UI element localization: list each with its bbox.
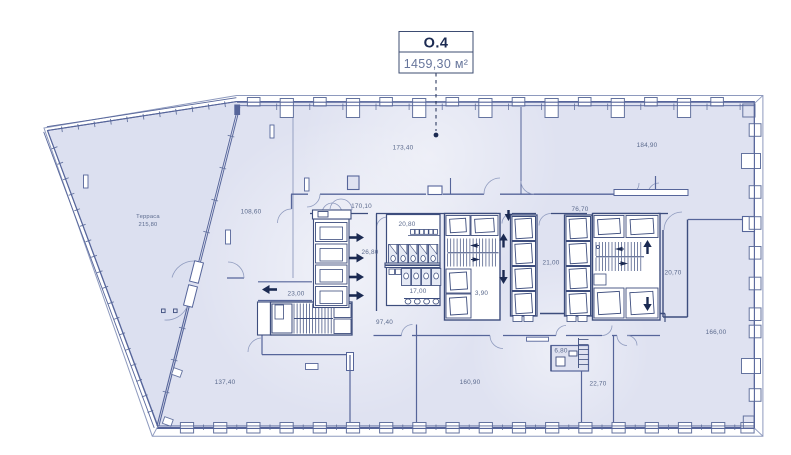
svg-text:160,90: 160,90 <box>460 379 481 386</box>
svg-text:1459,30 м²: 1459,30 м² <box>404 57 468 71</box>
svg-text:184,90: 184,90 <box>637 142 658 149</box>
svg-text:20,80: 20,80 <box>399 221 416 228</box>
svg-text:O.4: O.4 <box>424 36 449 52</box>
svg-text:97,40: 97,40 <box>376 319 393 326</box>
svg-text:3,90: 3,90 <box>475 290 488 297</box>
svg-text:170,10: 170,10 <box>351 203 372 210</box>
svg-text:20,70: 20,70 <box>665 270 682 277</box>
svg-text:21,00: 21,00 <box>543 260 560 267</box>
svg-text:166,00: 166,00 <box>706 329 727 336</box>
svg-text:Терраса: Терраса <box>136 214 160 220</box>
svg-text:6,80: 6,80 <box>554 348 567 355</box>
svg-text:22,70: 22,70 <box>590 381 607 388</box>
svg-text:137,40: 137,40 <box>215 379 236 386</box>
svg-text:173,40: 173,40 <box>393 145 414 152</box>
svg-text:23,00: 23,00 <box>288 291 305 298</box>
svg-text:215,80: 215,80 <box>139 222 158 228</box>
svg-text:76,70: 76,70 <box>572 206 589 213</box>
svg-text:17,00: 17,00 <box>410 288 427 295</box>
svg-text:108,60: 108,60 <box>241 209 262 216</box>
svg-text:26,80: 26,80 <box>362 249 379 256</box>
